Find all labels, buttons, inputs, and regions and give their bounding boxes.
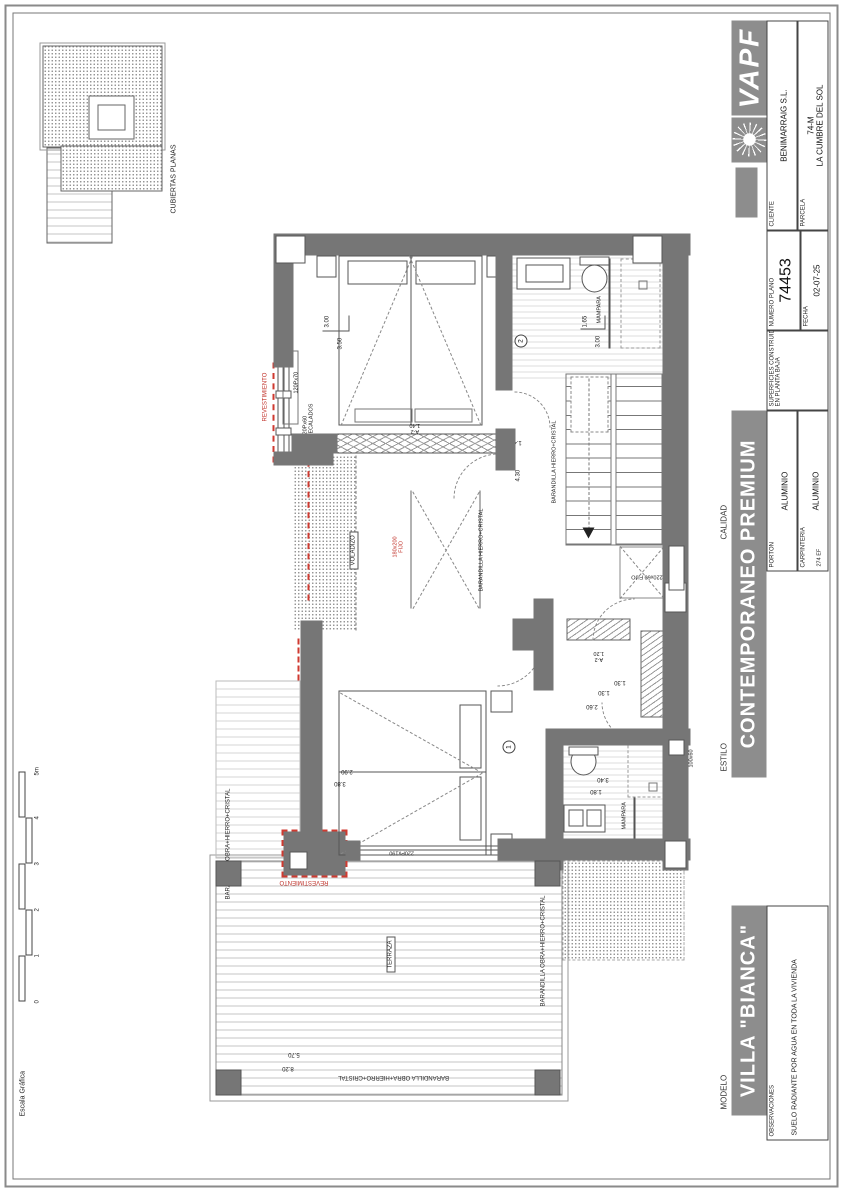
superficies-header-line: SUPERFICIES CONSTRUIDAS	[769, 321, 775, 406]
wall	[495, 428, 515, 470]
scale-bar-label: Escala Gráfica	[19, 1070, 27, 1116]
carpinteria-value: ALUMINIO	[811, 411, 820, 570]
dimension: 2.60	[581, 702, 601, 709]
scale-segment	[25, 909, 32, 955]
key-plan-caption: CUBIERTAS PLANAS	[170, 144, 178, 213]
scale-segment	[18, 771, 25, 817]
door-size: 1.20	[593, 649, 604, 655]
terrace-post	[534, 860, 560, 886]
nightstand	[490, 690, 512, 712]
terrace-deck	[215, 860, 562, 1095]
bench	[354, 408, 412, 422]
dimension: 1.30	[593, 688, 613, 695]
window-label-line: FIJO	[398, 540, 404, 552]
toilet	[581, 264, 607, 292]
wall-pillar-block	[664, 840, 686, 868]
door-size: 1.40	[409, 421, 420, 427]
carpinteria-header: CARPINTERIA	[800, 527, 806, 567]
sink-basin	[525, 264, 563, 282]
terrace-post	[215, 1069, 241, 1095]
shower-drain	[648, 782, 657, 791]
sliding-glass-door	[335, 433, 498, 453]
wall-pillar-block	[668, 545, 684, 590]
dimension-bracket	[604, 315, 605, 329]
door-code: A-2	[410, 427, 419, 433]
terraza-label: TERRAZA	[386, 936, 395, 972]
dimension: 1.80	[584, 787, 606, 794]
dimension: 2.90	[335, 767, 357, 774]
railing-label: BARANDILLA OBRA+HIERRO+CRISTAL	[338, 1073, 448, 1080]
key-plan-stairwell-inner	[97, 104, 125, 130]
dimension: 3.00	[324, 315, 331, 327]
window-label: 120Px70	[293, 371, 299, 393]
drawing-sheet: Escala Gráfica 0 1 2 3 4 5m CUBIERTAS PL…	[0, 0, 842, 1191]
railing-label: BARANDILLA HIERRO+CRISTAL	[551, 420, 557, 503]
railing-label: BARANDILLA HIERRO+CRISTAL	[478, 508, 484, 591]
sink-basin	[586, 809, 601, 826]
revestimiento-dash	[297, 638, 299, 680]
porton-cell: PORTON ALUMINIO	[766, 410, 797, 571]
wall	[545, 728, 563, 870]
nightstand	[316, 255, 336, 277]
bed-centerline	[410, 256, 411, 424]
scale-tick: 3	[34, 862, 41, 865]
sun-icon	[732, 123, 766, 157]
porton-value: ALUMINIO	[780, 411, 789, 570]
calidad-banner: CONTEMPORANEO PREMIUM	[731, 410, 766, 777]
revestimiento-dash	[307, 450, 309, 600]
wall	[273, 253, 293, 367]
staircase	[565, 373, 662, 545]
terrace-post	[215, 860, 241, 886]
superficies-header: SUPERFICIES CONSTRUIDASEN PLANTA BAJA	[769, 321, 781, 406]
railing-label: BARANDILLA OBRA+HIERRO+CRISTAL	[540, 895, 547, 1006]
toilet-tank	[568, 746, 598, 755]
estilo-caption: ESTILO	[719, 743, 728, 771]
window-label: 180x200FIJO	[392, 536, 405, 557]
mampara-label: MAMPARA	[596, 296, 602, 323]
voladizo-label: VOLADIZO	[349, 531, 358, 569]
window-label-line: FIJO	[631, 573, 643, 579]
carpinteria-cell: CARPINTERIA 274 EF ALUMINIO	[797, 410, 828, 571]
dimension-bracket	[348, 315, 349, 331]
sink-counter	[563, 804, 605, 832]
dimension: 3.40	[591, 775, 613, 782]
roof-below-area	[293, 455, 355, 630]
window-label: 220Px190	[378, 849, 424, 855]
fecha-header: FECHA	[803, 306, 809, 326]
dimension: 1.30	[609, 678, 629, 685]
pillar-core	[289, 851, 307, 869]
mampara-glass	[608, 258, 610, 348]
wall	[495, 233, 512, 390]
observaciones-value: SUELO RADIANTE POR AGUA EN TODA LA VIVIE…	[791, 959, 799, 1135]
scale-tick: 2	[34, 908, 41, 911]
modelo-banner: VILLA "BIANCA"	[731, 905, 766, 1115]
calidad-caption: CALIDAD	[719, 504, 728, 539]
door-number-badge: 1	[502, 740, 515, 753]
wall-pillar-block	[668, 739, 684, 755]
cliente-value: BENIMARRAIG S.L.	[779, 21, 788, 229]
sink-basin	[568, 809, 583, 826]
modelo-caption: MODELO	[719, 1074, 728, 1109]
bench	[414, 408, 472, 422]
scale-tick: 5m	[34, 767, 41, 775]
revestimiento-label: REVESTIMIENTO	[262, 372, 269, 421]
toilet-tank	[579, 256, 609, 265]
scale-tick: 0	[34, 1000, 41, 1003]
landscape-sheet: Escala Gráfica 0 1 2 3 4 5m CUBIERTAS PL…	[0, 0, 842, 1191]
superficies-cell: SUPERFICIES CONSTRUIDASEN PLANTA BAJA	[766, 330, 828, 410]
sink-counter	[516, 257, 570, 289]
scale-segment	[18, 955, 25, 1001]
wall	[291, 433, 337, 453]
door-label: A-21.20	[586, 649, 610, 662]
numero-plano-cell: NUMERO PLANO 74453	[766, 230, 800, 330]
dimension: 5.70	[281, 1050, 305, 1057]
mampara-label: MAMPARA	[621, 802, 627, 829]
scale-segment	[25, 817, 32, 863]
key-plan-stairwell	[88, 95, 134, 139]
door-label: A-21.40	[402, 421, 426, 434]
dimension: 8.20	[275, 1064, 299, 1071]
parcela-value-line: 74-M	[806, 116, 815, 134]
dimension: 3.50	[337, 337, 344, 349]
parcela-cell: PARCELA 74-MLA CUMBRE DEL SOL	[797, 20, 828, 230]
window-label: 120Px60DECALADOS	[302, 403, 315, 437]
bed	[338, 255, 482, 425]
bed-centerline	[339, 771, 485, 772]
numero-plano-value: 74453	[777, 231, 795, 329]
wall-pillar-block	[275, 235, 305, 263]
terrace-post	[534, 1069, 560, 1095]
window-label: 100x60	[688, 749, 694, 767]
scale-segment	[18, 863, 25, 909]
shower-drain	[638, 280, 647, 289]
window-label-line: 220x60	[644, 573, 662, 579]
parcela-header: PARCELA	[800, 198, 806, 226]
door-code: A-2	[594, 655, 603, 661]
vapf-logo: VAPF	[731, 20, 766, 115]
scale-tick: 4	[34, 816, 41, 819]
revestimiento-label: REVESTIMIENTO	[273, 878, 333, 885]
stair-direction-arrow	[582, 527, 594, 544]
wall-pillar-block	[632, 235, 662, 263]
dimension: 4.30	[515, 469, 522, 481]
numero-plano-header: NUMERO PLANO	[769, 277, 775, 326]
superficies-header-line: EN PLANTA BAJA	[775, 357, 781, 406]
lower-roof-area	[562, 860, 684, 960]
window-label: 220x60 FIJO	[632, 573, 662, 579]
porton-header: PORTON	[769, 542, 775, 567]
wall	[345, 840, 360, 860]
key-plan-roof-wing	[60, 145, 162, 191]
fecha-value: 02-07-25	[812, 231, 821, 329]
observaciones-header: OBSERVACIONES	[769, 1085, 775, 1136]
bed	[338, 690, 486, 855]
dimension: 3.00	[595, 335, 602, 347]
parcela-value: 74-MLA CUMBRE DEL SOL	[806, 21, 824, 229]
dimension-bracket	[580, 328, 604, 329]
scale-tick: 1	[34, 954, 41, 957]
observaciones-cell: OBSERVACIONES SUELO RADIANTE POR AGUA EN…	[766, 905, 828, 1140]
cliente-cell: CLIENTE BENIMARRAIG S.L.	[766, 20, 797, 230]
dimension-bracket	[322, 330, 348, 331]
revestimiento-dash	[272, 362, 274, 462]
sun-logo-box	[731, 117, 766, 162]
stair-walk-line	[588, 378, 589, 534]
stair-rail-line	[610, 374, 616, 544]
pillow	[415, 260, 475, 284]
logo-bar	[735, 167, 757, 217]
cliente-header: CLIENTE	[769, 201, 775, 226]
fecha-cell: FECHA 02-07-25	[800, 230, 828, 330]
dimension: 1.65	[582, 315, 589, 327]
wall	[300, 620, 322, 850]
window-mullion	[275, 427, 291, 435]
window-label-line: DECALADOS	[308, 403, 314, 437]
shower	[620, 258, 660, 348]
wall	[497, 838, 690, 860]
pillow	[347, 260, 407, 284]
pillow	[459, 704, 481, 768]
wall	[533, 598, 553, 690]
dimension: 3.80	[328, 779, 350, 786]
window-label-line: 180x200	[392, 536, 398, 557]
wall	[273, 233, 690, 255]
pillow	[459, 776, 481, 840]
parcela-value-line: LA CUMBRE DEL SOL	[815, 84, 824, 166]
door-number-badge: 2	[514, 334, 527, 347]
